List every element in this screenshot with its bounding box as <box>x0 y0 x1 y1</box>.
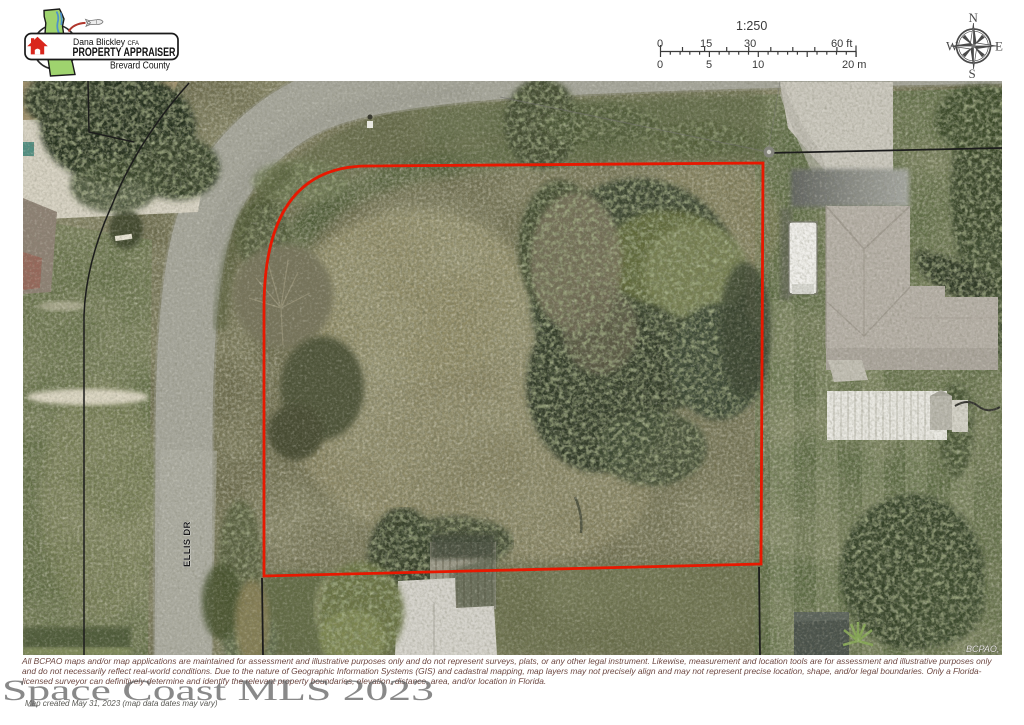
svg-text:15: 15 <box>700 38 712 50</box>
svg-text:1:250: 1:250 <box>736 19 767 33</box>
svg-text:0: 0 <box>657 59 663 71</box>
svg-text:Brevard County: Brevard County <box>110 61 170 72</box>
svg-text:N: N <box>969 10 979 25</box>
svg-text:ELLIS DR: ELLIS DR <box>182 521 193 567</box>
svg-text:30: 30 <box>744 38 756 50</box>
svg-text:5: 5 <box>706 59 712 71</box>
svg-text:BCPAO,: BCPAO, <box>966 644 999 654</box>
svg-text:10: 10 <box>752 59 764 71</box>
svg-text:S: S <box>969 66 976 81</box>
svg-text:20 m: 20 m <box>842 59 866 71</box>
svg-text:E: E <box>995 39 1003 54</box>
svg-text:W: W <box>946 39 959 54</box>
svg-text:60 ft: 60 ft <box>831 38 852 50</box>
svg-text:PROPERTY APPRAISER: PROPERTY APPRAISER <box>73 46 176 59</box>
